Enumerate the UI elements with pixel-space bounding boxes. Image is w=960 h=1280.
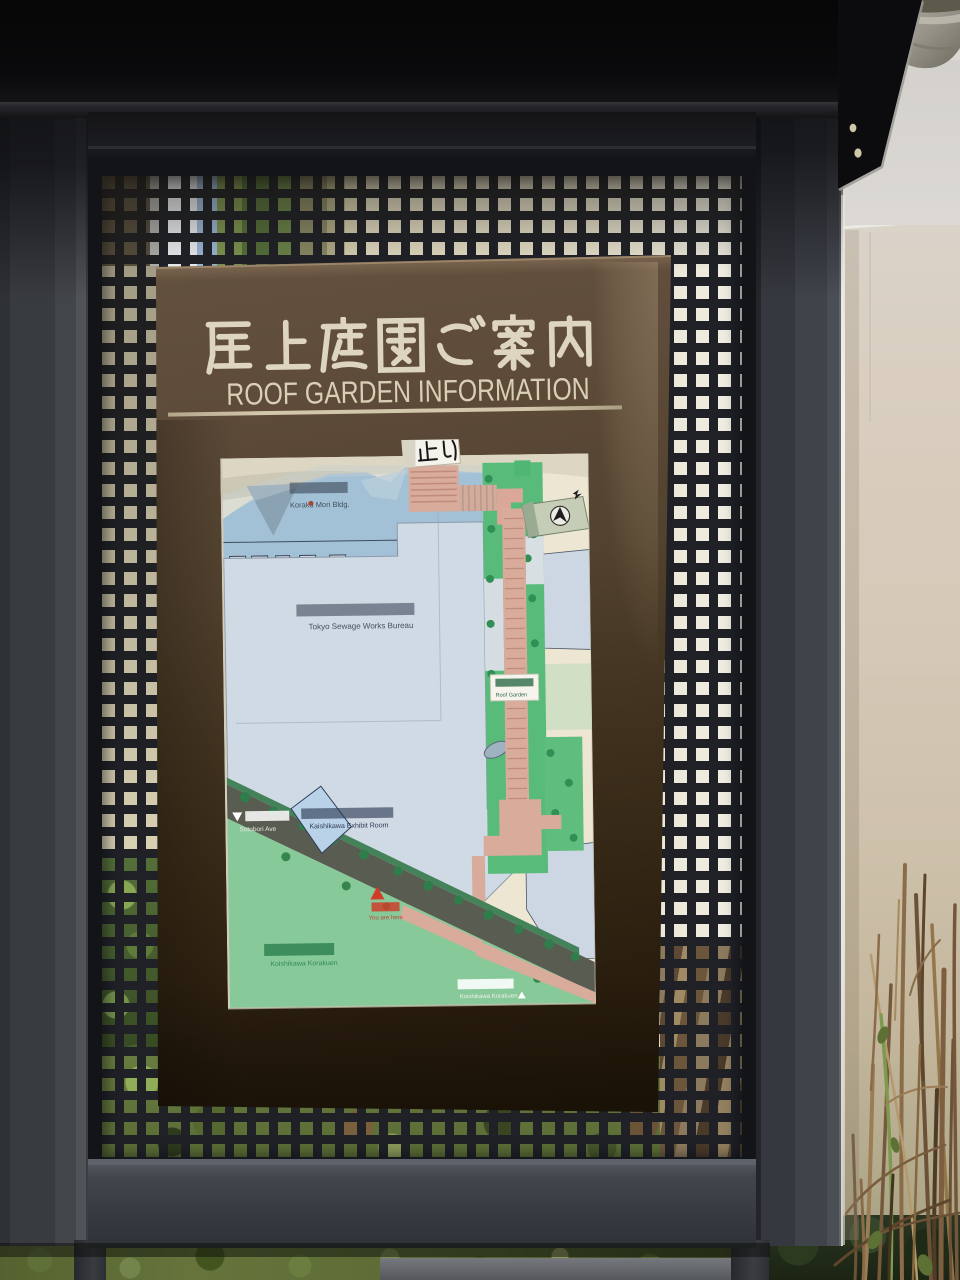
svg-text:Tokyo Sewage Works Bureau: Tokyo Sewage Works Bureau [309,621,414,631]
svg-text:Koishikawa Korakuen: Koishikawa Korakuen [270,960,338,968]
svg-text:You are here: You are here [369,915,404,921]
svg-text:Roof Garden: Roof Garden [496,692,528,698]
svg-text:Koraku Mori Bldg.: Koraku Mori Bldg. [290,500,350,510]
svg-text:Kaishikawa Exhibit Room: Kaishikawa Exhibit Room [309,822,388,830]
svg-text:Sotobori Ave: Sotobori Ave [239,826,276,834]
svg-text:Koishikawa Korakuen: Koishikawa Korakuen [460,993,518,1000]
